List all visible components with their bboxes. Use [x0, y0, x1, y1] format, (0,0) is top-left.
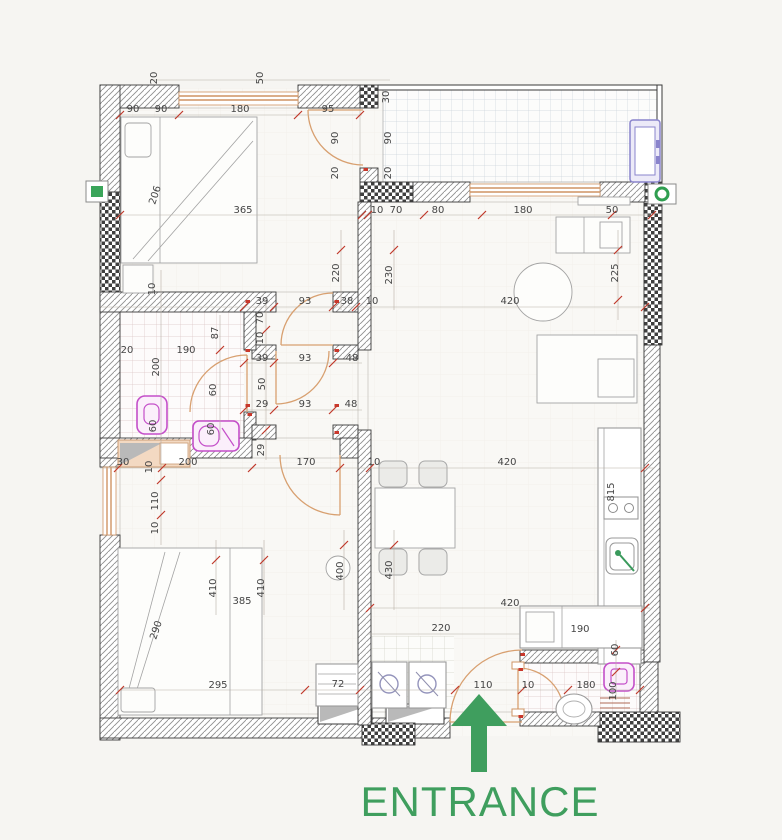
dimension-label: 220: [331, 263, 342, 282]
dimension-label: 410: [256, 578, 267, 597]
dimension-label: 110: [150, 491, 161, 510]
dimension-label: 30: [381, 91, 392, 104]
dimension-label: 90: [155, 104, 168, 115]
dimension-label: 60: [610, 644, 621, 657]
dimension-label: 10: [144, 461, 155, 474]
dimension-label: 225: [610, 263, 621, 282]
balcony-floor: [383, 90, 657, 182]
dimension-label: 400: [335, 561, 346, 580]
dimension-label: 10: [368, 457, 381, 468]
dimension-label: 93: [299, 296, 312, 307]
dimension-label: 50: [257, 378, 268, 391]
dimension-label: 200: [178, 457, 197, 468]
green-wall-marker-left: [86, 181, 108, 202]
bed-bedroom1: [121, 117, 257, 263]
dimension-label: 100: [608, 681, 619, 700]
dimension-label: 10: [366, 296, 379, 307]
dimension-label: 410: [208, 578, 219, 597]
window-balcony: [470, 184, 600, 196]
door-frame: [512, 709, 524, 716]
dimension-label: 50: [606, 205, 619, 216]
dimension-label: 10: [150, 522, 161, 535]
dimension-label: 80: [432, 205, 445, 216]
dimension-label: 93: [299, 399, 312, 410]
dimension-label: 20: [383, 167, 394, 180]
dimension-label: 72: [332, 679, 345, 690]
dimension-label: 10: [255, 332, 266, 345]
dimension-label: 180: [230, 104, 249, 115]
dimension-label: 20: [330, 167, 341, 180]
dimension-label: 420: [500, 598, 519, 609]
dimension-label: 38: [341, 296, 354, 307]
entry-cabinets: [372, 662, 446, 708]
dimension-label: 30: [117, 457, 130, 468]
dimension-label: 815: [606, 482, 617, 501]
dimension-label: 385: [232, 596, 251, 607]
dimension-label: 29: [256, 444, 267, 457]
dimension-label: 90: [330, 132, 341, 145]
dimension-label: 420: [500, 296, 519, 307]
dimension-label: 87: [210, 327, 221, 340]
floor-plan-drawing: 2050309090180959090202010708018050365206…: [0, 0, 782, 840]
dimension-label: 200: [151, 357, 162, 376]
ac-unit: [630, 120, 660, 182]
dimension-label: 60: [208, 384, 219, 397]
dimension-label: 70: [255, 312, 266, 325]
dimension-label: 420: [497, 457, 516, 468]
dimension-label: 90: [383, 132, 394, 145]
dimension-label: 10: [147, 283, 158, 296]
balcony-outer-wall: [378, 85, 662, 90]
sofa: [537, 335, 637, 403]
dimension-label: 365: [233, 205, 252, 216]
dimension-label: 39: [256, 353, 269, 364]
dimension-label: 60: [148, 420, 159, 433]
dimension-label: 70: [390, 205, 403, 216]
dimension-label: 50: [255, 72, 266, 85]
dimension-label: 48: [345, 399, 358, 410]
green-wall-marker-right: [648, 184, 676, 204]
dimension-label: 95: [322, 104, 335, 115]
dimension-label: 295: [208, 680, 227, 691]
dimension-label: 10: [522, 680, 535, 691]
dimension-label: 190: [570, 624, 589, 635]
round-table: [514, 263, 572, 321]
window-left: [103, 467, 116, 535]
dimension-label: 10: [371, 205, 384, 216]
dimension-label: 180: [513, 205, 532, 216]
dimension-label: 110: [473, 680, 492, 691]
dimension-label: 230: [384, 265, 395, 284]
dimension-label: 220: [431, 623, 450, 634]
dimension-label: 180: [576, 680, 595, 691]
door-frame: [512, 662, 524, 669]
dimension-label: 29: [256, 399, 269, 410]
dimension-label: 48: [346, 353, 359, 364]
entrance-label: ENTRANCE: [360, 778, 599, 825]
dimension-label: 90: [127, 104, 140, 115]
dimension-label: 170: [296, 457, 315, 468]
dimension-label: 190: [176, 345, 195, 356]
dimension-label: 430: [384, 560, 395, 579]
dimension-label: 60: [206, 423, 217, 436]
dimension-label: 20: [149, 72, 160, 85]
dimension-label: 20: [121, 345, 134, 356]
dimension-label: 39: [256, 296, 269, 307]
floor-plan-page: 2050309090180959090202010708018050365206…: [0, 0, 782, 840]
dimension-label: 93: [299, 353, 312, 364]
